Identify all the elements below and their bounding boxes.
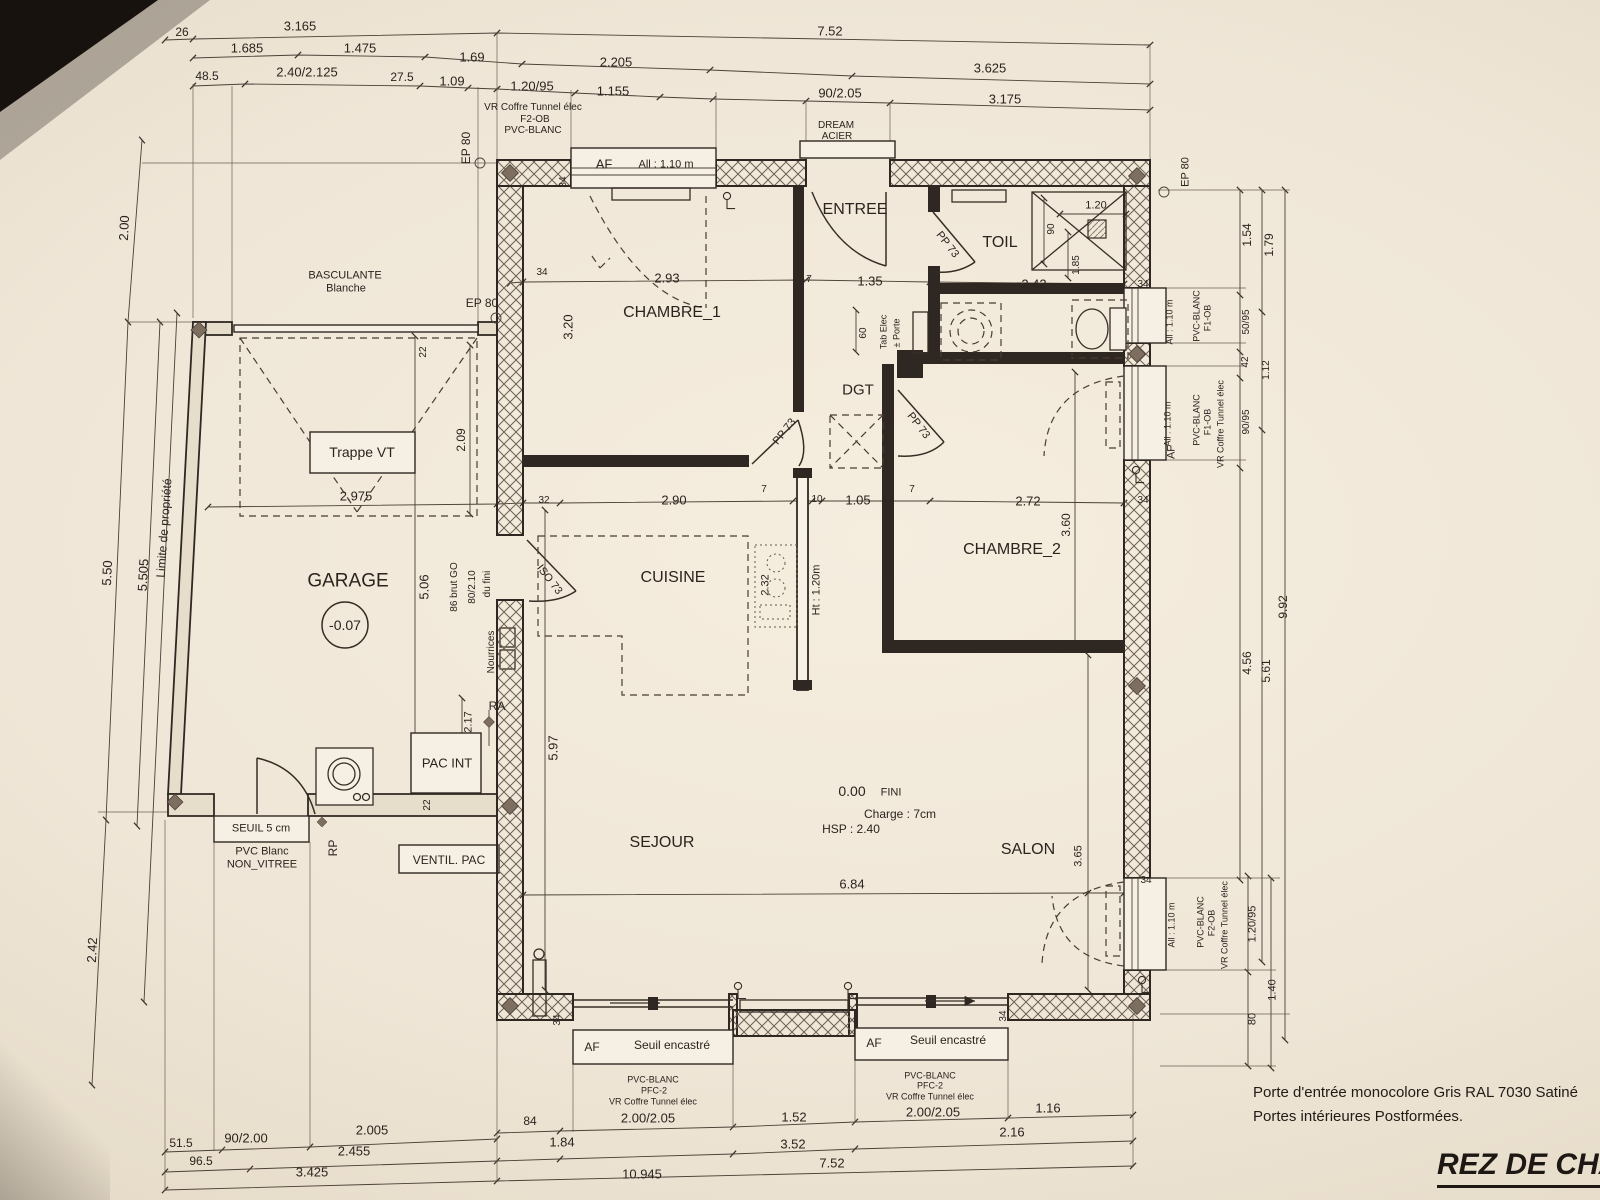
dim-label: 2.455 xyxy=(338,1145,371,1158)
window-spec-label: F2-OB xyxy=(520,115,549,125)
window-spec-label: VR Coffre Tunnel élec xyxy=(609,1098,697,1107)
dim-label: 1.52 xyxy=(781,1111,806,1124)
hatch-label: Trappe VT xyxy=(329,445,395,459)
room-label-salon: SALON xyxy=(1001,842,1055,858)
window-label: AF xyxy=(866,1037,881,1049)
dim-label: 7 xyxy=(1067,353,1077,359)
photo-edge-shadow xyxy=(0,1040,110,1200)
room-label-toil: TOIL xyxy=(982,235,1017,251)
dim-label: 22 xyxy=(419,346,429,357)
plan-title: REZ DE CHAU xyxy=(1437,1148,1600,1188)
dim-label: 5.505 xyxy=(136,558,151,591)
dim-label: 2.42 xyxy=(1021,278,1046,291)
photographed-floorplan-page: 263.1657.521.6851.4751.692.2053.62548.52… xyxy=(0,0,1600,1200)
property-limit-label: Limite de propriété xyxy=(155,478,174,578)
level-label-rdc: 0.00 xyxy=(838,784,865,798)
window-spec-label: VR Coffre Tunnel élec xyxy=(1217,380,1226,468)
elec-label: Tab Elec xyxy=(880,315,889,350)
window-label: AF xyxy=(1167,445,1178,459)
dim-label: 2.975 xyxy=(340,490,373,503)
window-spec-label: F1-OB xyxy=(1204,305,1213,332)
dim-label: 34 xyxy=(536,268,547,278)
dim-label: 5.06 xyxy=(418,574,431,599)
dim-label: 86 brut GO xyxy=(450,562,460,611)
label-layer: 263.1657.521.6851.4751.692.2053.62548.52… xyxy=(0,0,1600,1200)
window-spec-label: VR Coffre Tunnel élec xyxy=(886,1093,974,1102)
interior-doors-note: Portes intérieures Postformées. xyxy=(1253,1108,1463,1125)
dim-label: 1.20/95 xyxy=(510,80,553,93)
dim-label: 96.5 xyxy=(189,1155,212,1167)
dim-label: 90 xyxy=(1047,223,1057,234)
dim-label: 90/2.00 xyxy=(224,1132,267,1145)
dim-label: 1.09 xyxy=(439,75,464,88)
window-spec-label: F1-OB xyxy=(1204,409,1213,436)
door-label-pp73: PP 73 xyxy=(771,417,798,447)
dim-label: 5.97 xyxy=(547,735,560,760)
dim-label: 60 xyxy=(859,327,869,338)
window-spec-label: PFC-2 xyxy=(641,1087,667,1096)
room-label-chambre1: CHAMBRE_1 xyxy=(623,305,721,321)
dim-label: 1.85 xyxy=(1072,255,1082,274)
dim-label: 1.16 xyxy=(1035,1102,1060,1115)
dim-label: 22 xyxy=(423,799,433,810)
dim-label: 6.84 xyxy=(839,878,864,891)
dim-label: 34 xyxy=(1137,496,1148,506)
window-spec-label: PVC-BLANC xyxy=(627,1076,679,1085)
window-label: AF xyxy=(584,1041,599,1053)
dim-label: 32 xyxy=(538,496,549,506)
window-spec-label: PVC-BLANC xyxy=(904,1072,956,1081)
window-spec-label: PVC-BLANC xyxy=(1193,394,1202,446)
dim-label: 2.005 xyxy=(356,1124,389,1137)
dim-label: 1.12 xyxy=(1262,360,1272,379)
dim-label: 3.165 xyxy=(284,20,317,33)
door-label-pp73: PP 73 xyxy=(933,230,960,260)
ceiling-label: HSP : 2.40 xyxy=(822,823,880,835)
dim-label: 80/2.10 xyxy=(468,570,478,603)
room-label-sejour: SEJOUR xyxy=(630,835,695,851)
dim-label: 1.54 xyxy=(1241,223,1253,246)
dim-label: 3.625 xyxy=(974,62,1007,75)
elec-label: ± Porte xyxy=(893,319,902,348)
dim-label: 80 xyxy=(1248,1013,1259,1025)
dim-label: Ht : 1.20m xyxy=(812,565,823,616)
dim-label: 3.175 xyxy=(989,93,1022,106)
dim-label: 50/95 xyxy=(1242,309,1252,334)
dim-label: 90/2.05 xyxy=(818,87,861,100)
dim-label: 5.61 xyxy=(1260,659,1272,682)
door-spec-label: NON_VITREE xyxy=(227,860,297,871)
garage-door-label: Blanche xyxy=(326,284,366,295)
dim-label: 3.20 xyxy=(562,314,575,339)
wall-spec-label: EP 80 xyxy=(1181,157,1192,187)
dim-label: 1.155 xyxy=(597,85,630,98)
dim-label: 1.79 xyxy=(1263,233,1275,256)
dim-label: 9.92 xyxy=(1277,595,1289,618)
dim-label: 34 xyxy=(559,176,569,187)
window-spec-label: F2-OB xyxy=(1208,910,1217,937)
window-spec-label: VR Coffre Tunnel élec xyxy=(1221,881,1230,969)
garage-door-label: BASCULANTE xyxy=(308,271,381,282)
wall-spec-label: EP 80 xyxy=(460,132,472,164)
window-spec-label: PVC-BLANC xyxy=(504,126,561,136)
dim-label: 2.00/2.05 xyxy=(621,1112,675,1125)
window-spec-label: PVC-BLANC xyxy=(1197,896,1206,948)
plumbing-label: RP xyxy=(327,840,339,857)
dim-label: 3.60 xyxy=(1060,513,1072,536)
dim-label: 1.84 xyxy=(549,1136,574,1149)
dim-label: 26 xyxy=(175,26,188,38)
dim-label: 1.35 xyxy=(857,275,882,288)
wall-spec-label: EP 80 xyxy=(466,297,498,309)
dim-label: du fini xyxy=(483,571,493,598)
dim-label: 2.40/2.125 xyxy=(276,66,337,79)
dim-label: 48.5 xyxy=(195,70,218,82)
room-label-entree: ENTREE xyxy=(823,202,888,218)
dim-label: 1.475 xyxy=(344,42,377,55)
window-spec-label: PVC-BLANC xyxy=(1193,290,1202,342)
dim-label: 3.65 xyxy=(1074,845,1085,866)
dim-label: 10.945 xyxy=(622,1168,662,1181)
dim-label: 2.32 xyxy=(761,574,772,595)
plumbing-label: RA xyxy=(489,700,506,712)
dim-label: 7.52 xyxy=(817,25,842,38)
dim-label: 1.05 xyxy=(845,494,870,507)
dim-label: 1.69 xyxy=(459,51,484,64)
dim-label: 51.5 xyxy=(169,1137,192,1149)
dim-label: 2.16 xyxy=(999,1126,1024,1139)
dim-label: 2.17 xyxy=(464,711,475,732)
threshold-label: Seuil encastré xyxy=(634,1039,710,1051)
dim-label: 1.20/95 xyxy=(1248,906,1259,943)
threshold-label: SEUIL 5 cm xyxy=(232,824,290,835)
dim-label: 10 xyxy=(811,495,822,505)
door-material-label: ACIER xyxy=(822,132,853,142)
dim-label: 2.90 xyxy=(661,494,686,507)
entry-door-note: Porte d'entrée monocolore Gris RAL 7030 … xyxy=(1253,1084,1578,1101)
room-label-dgt: DGT xyxy=(842,383,874,398)
door-label-pp73: PP 73 xyxy=(904,411,931,441)
dim-label: 1.40 xyxy=(1268,979,1279,1000)
dim-label: 3.52 xyxy=(780,1138,805,1151)
dim-label: 7 xyxy=(909,485,915,495)
finish-label: FINI xyxy=(881,788,902,799)
plumbing-label: Nourrices xyxy=(487,631,497,674)
dim-label: 2.42 xyxy=(85,937,99,963)
door-spec-label: PVC Blanc xyxy=(235,847,288,858)
window-label: All : 1.10 m xyxy=(638,160,693,171)
dim-label: 34 xyxy=(1137,280,1148,290)
room-label-chambre2: CHAMBRE_2 xyxy=(963,542,1061,558)
window-spec-label: VR Coffre Tunnel élec xyxy=(484,103,582,113)
window-spec-label: All : 1.10 m xyxy=(1168,902,1177,947)
dim-label: 5.50 xyxy=(100,560,114,586)
dim-label: 7.52 xyxy=(819,1157,844,1170)
dim-label: 2.72 xyxy=(1015,495,1040,508)
dim-label: 2.205 xyxy=(600,56,633,69)
dim-label: 2.93 xyxy=(654,272,679,285)
dim-label: 2.09 xyxy=(455,428,467,451)
dim-label: 2.00 xyxy=(117,215,131,241)
dim-label: 34 xyxy=(999,1010,1009,1021)
dim-label: 42 xyxy=(1241,356,1251,367)
door-label-iso73: ISO 73 xyxy=(534,563,564,597)
dim-label: 4.56 xyxy=(1241,651,1253,674)
equipment-label: VENTIL. PAC xyxy=(413,854,485,866)
window-spec-label: All : 1.10 m xyxy=(1164,401,1173,446)
dim-label: 7 xyxy=(1052,647,1062,653)
dim-label: 27.5 xyxy=(390,71,413,83)
dim-label: 90/95 xyxy=(1242,409,1252,434)
door-material-label: DREAM xyxy=(818,121,854,131)
window-spec-label: PFC-2 xyxy=(917,1082,943,1091)
room-label-cuisine: CUISINE xyxy=(641,570,706,586)
dim-label: 1.685 xyxy=(231,42,264,55)
dim-label: 1.20 xyxy=(1085,201,1106,212)
equipment-label: PAC INT xyxy=(422,757,472,770)
level-label-garage: -0.07 xyxy=(329,618,361,632)
dim-label: 3.425 xyxy=(296,1166,329,1179)
dim-label: 7 xyxy=(806,275,812,285)
room-label-garage: GARAGE xyxy=(307,572,388,591)
charge-label: Charge : 7cm xyxy=(864,808,936,820)
window-label: AF xyxy=(596,158,613,171)
dim-label: 34 xyxy=(553,1014,563,1025)
window-spec-label: All : 1.10 m xyxy=(1166,299,1175,344)
threshold-label: Seuil encastré xyxy=(910,1034,986,1046)
dim-label: 7 xyxy=(761,485,767,495)
dim-label: 34 xyxy=(1140,876,1151,886)
dim-label: 2.00/2.05 xyxy=(906,1106,960,1119)
dim-label: 84 xyxy=(523,1115,536,1127)
